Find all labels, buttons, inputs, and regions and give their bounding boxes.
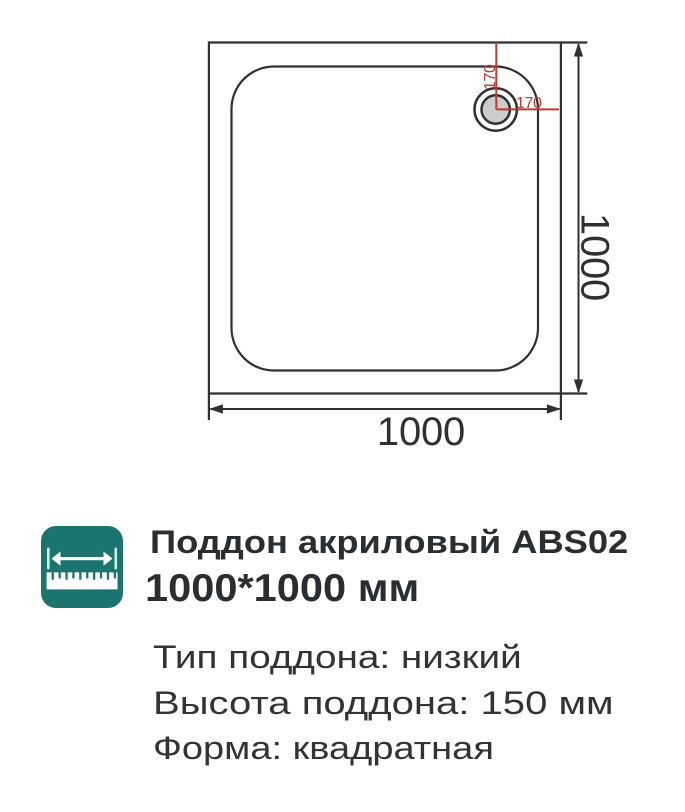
svg-text:170: 170 — [482, 64, 499, 90]
svg-text:1000: 1000 — [377, 410, 465, 454]
svg-text:170: 170 — [516, 95, 542, 112]
svg-text:1000: 1000 — [573, 213, 617, 301]
